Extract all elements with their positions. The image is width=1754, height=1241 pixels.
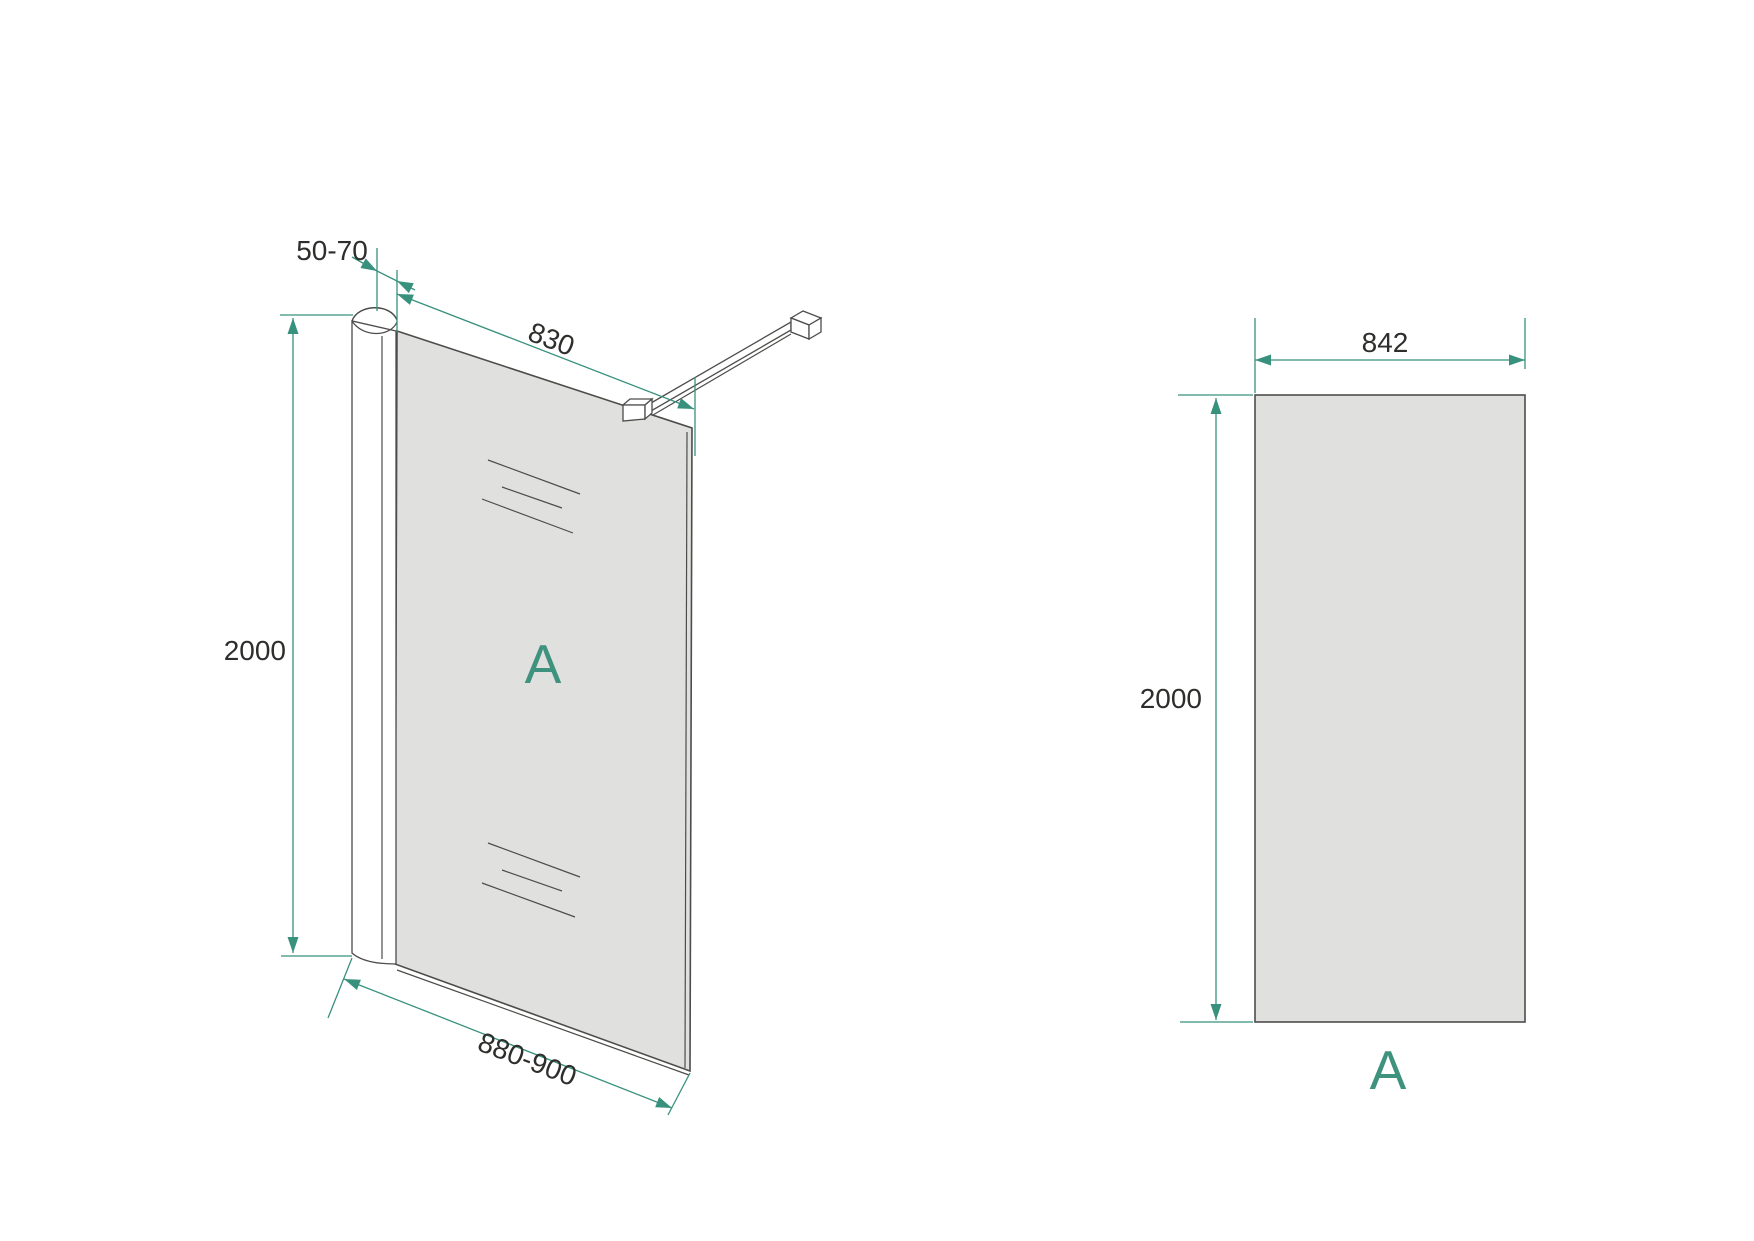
- dim-label-wall-gap: 50-70: [296, 235, 368, 266]
- front-view: 842 2000 A: [1140, 318, 1525, 1101]
- panel-label-front: A: [1370, 1039, 1407, 1101]
- panel-label-iso: A: [525, 633, 562, 695]
- dim-line: [377, 271, 397, 281]
- shower-screen-dimension-drawing: 2000 50-70 830 880-900 A: [0, 0, 1754, 1241]
- stabilizer-bar-lower-edge: [653, 334, 791, 415]
- wall-profile: [352, 308, 397, 964]
- dim-label-width: 842: [1362, 327, 1409, 358]
- dimension-height-front: 2000: [1140, 395, 1253, 1022]
- wall-profile-body: [352, 321, 396, 964]
- dimension-height-iso: 2000: [224, 315, 353, 956]
- dimension-wall-gap: 50-70: [296, 235, 415, 332]
- iso-view: 2000 50-70 830 880-900 A: [224, 235, 821, 1115]
- glass-panel-front: [1255, 395, 1525, 1022]
- glass-panel: [395, 331, 692, 1071]
- stabilizer-bar: [623, 311, 821, 421]
- dim-extension: [668, 1073, 690, 1115]
- dim-label-top-width: 830: [524, 316, 579, 362]
- dim-label-bottom-width: 880-900: [474, 1026, 581, 1092]
- technical-drawing-page: 2000 50-70 830 880-900 A: [0, 0, 1754, 1241]
- dim-label-height: 2000: [224, 635, 286, 666]
- wall-bracket: [791, 311, 821, 339]
- stabilizer-bar-body: [651, 322, 791, 411]
- dim-label-height: 2000: [1140, 683, 1202, 714]
- wall-profile-cap-top: [352, 308, 397, 321]
- dim-line: [397, 281, 415, 290]
- dimension-width-front: 842: [1255, 318, 1525, 393]
- dim-extension: [328, 958, 352, 1018]
